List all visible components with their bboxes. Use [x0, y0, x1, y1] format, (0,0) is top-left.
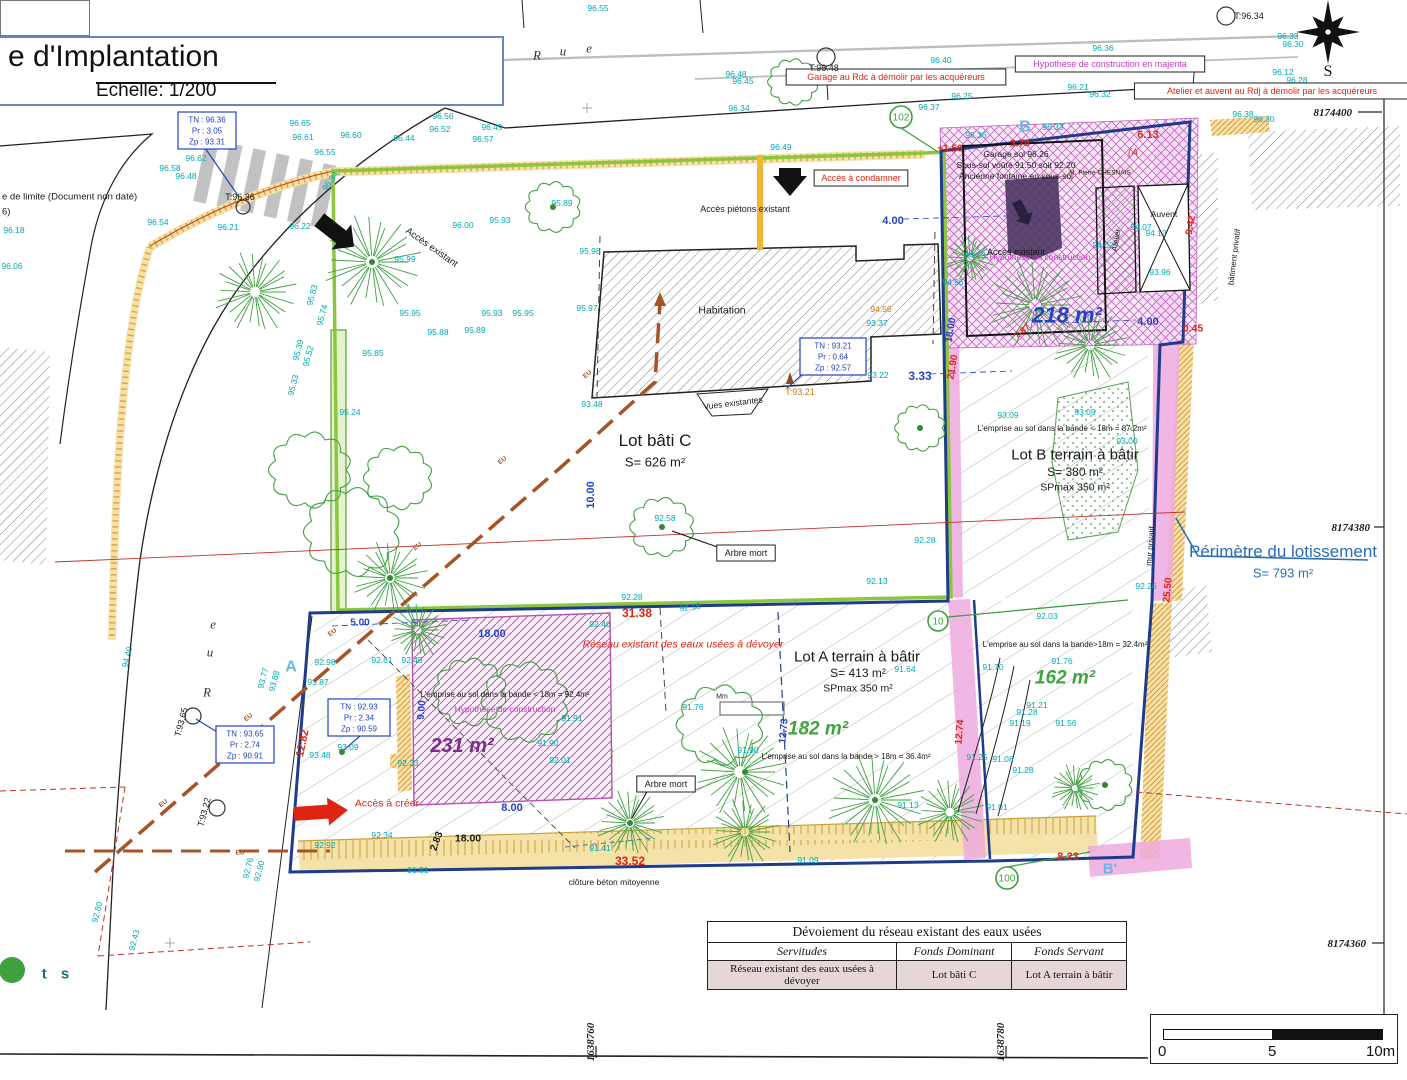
spot-elevation: 93.37 — [866, 318, 888, 328]
annotation-label: Accès piétons existant — [700, 204, 790, 214]
annotation-label: Arbre mort — [725, 548, 768, 558]
compass-rose: S — [1296, 0, 1360, 80]
plan-scale: Echelle: 1/200 — [96, 80, 216, 102]
spot-elevation: 95.93 — [481, 308, 503, 318]
site-plan-drawing: S 96.5596.5596.6596.6196.6096.5696.5296.… — [0, 0, 1407, 1080]
survey-info-line: Pr : 0.64 — [818, 352, 849, 361]
spot-elevation: 94.40 — [119, 645, 134, 668]
spot-elevation: 92.26 — [1135, 581, 1157, 591]
spot-elevation: 91.90 — [737, 745, 759, 755]
perimeter-label: Périmètre du lotissement — [1189, 542, 1377, 561]
dimension-label: 12.74 — [953, 719, 966, 745]
spot-elevation: 95.85 — [362, 348, 384, 358]
spot-elevation: 95.95 — [512, 308, 534, 318]
dimension-label: +1.50 — [937, 144, 963, 155]
spot-elevation: 96.45 — [732, 76, 754, 86]
spot-elevation: 96.40 — [930, 55, 952, 65]
survey-info-line: Zp : 92.57 — [815, 363, 852, 372]
emprise-note: L'emprise au sol dans la bande>18m = 32.… — [983, 640, 1148, 649]
spot-elevation: 95.33 — [285, 373, 300, 396]
street-name-letter: e — [586, 41, 592, 56]
spot-elevation: 91.51 — [407, 865, 429, 875]
spot-elevation: 96.52 — [429, 124, 451, 134]
spot-elevation: 96.62 — [185, 153, 207, 163]
scale-label-0: 0 — [1158, 1043, 1166, 1060]
dimension-label: 9.00 — [416, 699, 429, 720]
dimension-label: 10.00 — [585, 481, 597, 509]
emprise-note: L'emprise au sol dans la bande < 18m = 8… — [977, 424, 1147, 433]
spot-elevation: 94.56 — [870, 304, 892, 314]
spot-elevation: 96.44 — [393, 133, 415, 143]
spot-elevation: 91.64 — [894, 664, 916, 674]
annotation-label: A — [285, 659, 297, 676]
spot-elevation: 93.48 — [309, 750, 331, 760]
survey-point-label: T:96.48 — [809, 63, 839, 73]
spot-elevation: 91.90 — [537, 738, 559, 748]
dimension-label: 25.50 — [1161, 577, 1174, 603]
dimension-label: 18.00 — [478, 628, 506, 640]
spot-elevation: 93.09 — [997, 410, 1019, 420]
annotation-label: bâtiment privatif — [1226, 228, 1242, 286]
spot-elevation: 92.23 — [397, 758, 419, 768]
table-cell-servitude: Réseau existant des eaux usées à dévoyer — [708, 961, 897, 990]
dimension-label: 31.38 — [622, 606, 652, 620]
compass-south-label: S — [1324, 63, 1333, 80]
table-title: Dévoiement du réseau existant des eaux u… — [708, 922, 1127, 943]
spot-elevation: 91.76 — [682, 702, 704, 712]
spot-elevation: 92.13 — [866, 576, 888, 586]
spot-elevation: 91.28 — [1012, 765, 1034, 775]
spot-elevation: 96.30 — [1253, 114, 1275, 124]
dimension-label: 33.52 — [615, 854, 645, 868]
survey-info-line: Zp : 90.59 — [341, 724, 378, 733]
spot-elevation: 92.58 — [654, 513, 676, 523]
table-cell-dominant: Lot bâti C — [897, 961, 1012, 990]
spot-elevation: 92.28 — [621, 592, 643, 602]
annotation-label: e de limite (Document non daté) — [2, 191, 137, 202]
survey-info-line: Zp : 90.91 — [227, 751, 264, 760]
annotation-label: Réseau existant des eaux usées à dévoyer — [583, 639, 784, 651]
spot-elevation: 96.38 — [1232, 109, 1254, 119]
scale-bar-white-segment — [1163, 1029, 1273, 1040]
annotation-label: Accès à condamner — [821, 173, 901, 183]
spot-elevation: 96.21 — [1067, 82, 1089, 92]
spot-elevation: 93.87 — [307, 677, 329, 687]
plan-title: e d'Implantation — [8, 40, 219, 74]
annotation-label: Ancienne fontaine en sous-sol — [959, 171, 1073, 181]
dimension-label: 6.13 — [1137, 129, 1158, 141]
spot-elevation: 95.93 — [489, 215, 511, 225]
grid-coordinate-label: 8174360 — [1328, 938, 1367, 950]
annotation-label: Arbre mort — [645, 779, 688, 789]
dimension-label: 8.00 — [501, 802, 522, 814]
spot-elevation: 94.99 — [964, 250, 986, 260]
street-name-letter: e — [210, 617, 216, 632]
spot-elevation: 96.33 — [1042, 122, 1064, 132]
spot-elevation: 92.61 — [371, 655, 393, 665]
spot-elevation: 96.57 — [472, 134, 494, 144]
spot-elevation: 92.43 — [126, 928, 141, 951]
spot-elevation: 96.55 — [587, 3, 609, 13]
emprise-note: L'emprise au sol dans la bande > 18m = 3… — [761, 752, 931, 761]
perimeter-area: S= 793 m² — [1253, 566, 1314, 581]
spot-elevation: 96.36 — [965, 130, 987, 140]
spot-elevation: 93.00 — [1116, 436, 1138, 446]
grid-coordinate-label: 8174380 — [1332, 522, 1371, 534]
spot-elevation: 95.88 — [427, 327, 449, 337]
annotation-label: M. Pierre CHESNAIS — [1069, 169, 1131, 176]
spot-elevation: 93.48 — [581, 399, 603, 409]
construction-area-label: 182 m² — [788, 719, 849, 740]
spot-elevation: 95.95 — [399, 308, 421, 318]
spot-elevation: 95.89 — [551, 198, 573, 208]
spot-elevation: 92.45 — [401, 655, 423, 665]
parcel-label: Lot B terrain à bâtir — [1011, 446, 1139, 463]
survey-point-circle — [1217, 7, 1235, 25]
spot-elevation: 92.34 — [371, 830, 393, 840]
eu-label: EU — [412, 541, 424, 552]
parcel-number: 102 — [893, 113, 910, 124]
site-plan-page: S 96.5596.5596.6596.6196.6096.5696.5296.… — [0, 0, 1407, 1080]
annotation-label: clôture béton mitoyenne — [569, 877, 660, 887]
spot-elevation: 95.83 — [304, 283, 319, 306]
spot-elevation: 96.36 — [1092, 43, 1114, 53]
dimension-label: 3.78 — [1010, 139, 1030, 150]
street-name-letter: R — [202, 685, 211, 700]
spot-elevation: 96.34 — [728, 103, 750, 113]
spot-elevation: 91.56 — [1055, 718, 1077, 728]
spot-elevation: 96.65 — [289, 118, 311, 128]
spot-elevation: 91.01 — [986, 802, 1008, 812]
eu-label: EU — [243, 712, 255, 723]
spot-elevation: 92.01 — [549, 755, 571, 765]
spot-elevation: 91.91 — [561, 713, 583, 723]
spot-elevation: 96.49 — [481, 122, 503, 132]
compass-center — [1325, 29, 1330, 34]
annotation-label: (A — [1128, 148, 1138, 159]
spot-elevation: 91.19 — [1009, 718, 1031, 728]
spot-elevation: 96.21 — [217, 222, 239, 232]
spot-elevation: 91.09 — [797, 855, 819, 865]
spot-elevation: 96.56 — [432, 111, 454, 121]
scale-label-10m: 10m — [1366, 1043, 1395, 1060]
annotation-label: Sous-sol voûté 91.50 soit 92.20 — [956, 160, 1075, 170]
table-header-servitudes: Servitudes — [708, 943, 897, 961]
survey-point-label: T:96.36 — [225, 192, 255, 202]
parcel-label: S= 413 m² — [830, 666, 886, 680]
parcel-label: Lot bâti C — [619, 431, 692, 450]
annotation-label: 6) — [2, 206, 10, 217]
dimension-label: 8.23 — [1057, 851, 1078, 863]
habitation-building — [592, 244, 941, 398]
spot-elevation: 92.03 — [1036, 611, 1058, 621]
survey-point-label: T:93.21 — [785, 387, 815, 397]
servitude-table: Dévoiement du réseau existant des eaux u… — [707, 921, 1127, 990]
spot-elevation: 96.49 — [770, 142, 792, 152]
table-header-fonds-dominant: Fonds Dominant — [897, 943, 1012, 961]
annotation-label: B' — [1103, 860, 1117, 877]
annotation-label: t s — [42, 965, 75, 982]
emprise-note: L'emprise au sol dans la bande < 18m = 9… — [420, 690, 590, 699]
parcel-label: SPmax 350 m² — [823, 683, 893, 695]
table-row: Réseau existant des eaux usées à dévoyer… — [708, 961, 1127, 990]
annotation-label: Accès à créer — [355, 798, 420, 810]
grid-coordinate-label: 1638780 — [995, 1022, 1007, 1061]
spot-elevation: 91.08 — [992, 754, 1014, 764]
annotation-label: Auvent — [1151, 209, 1178, 219]
spot-elevation: 96.32 — [1089, 89, 1111, 99]
spot-elevation: 95.99 — [394, 254, 416, 264]
scale-bar: 0 5 10m — [1150, 1014, 1398, 1064]
spot-elevation: 91.28 — [1016, 707, 1038, 717]
annotation-label: B — [1019, 119, 1031, 136]
annotation-label: Atelier et auvent au Rdj à démolir par l… — [1167, 86, 1378, 96]
survey-info-line: TN : 93.65 — [226, 729, 264, 738]
spot-elevation: 91.25 — [966, 752, 988, 762]
annotation-label: Garage sol 96.26 — [983, 149, 1048, 159]
eu-label: EU — [497, 455, 509, 466]
spot-elevation: 95.89 — [464, 325, 486, 335]
spot-elevation: 96.25 — [951, 91, 973, 101]
title-block: e d'Implantation Echelle: 1/200 — [0, 36, 504, 106]
spot-elevation: 93.09 — [1074, 407, 1096, 417]
spot-elevation: 96.61 — [292, 132, 314, 142]
spot-elevation: 92.92 — [314, 840, 336, 850]
spot-elevation: 96.00 — [452, 220, 474, 230]
spot-elevation: 91.70 — [982, 662, 1004, 672]
spot-elevation: 92.98 — [314, 657, 336, 667]
table-header-fonds-servant: Fonds Servant — [1012, 943, 1127, 961]
corner-box — [0, 0, 90, 36]
dimension-label: 4.00 — [1137, 316, 1158, 328]
spot-elevation: 96.37 — [918, 102, 940, 112]
spot-elevation: 92.46 — [589, 619, 611, 629]
spot-elevation: 96.60 — [340, 130, 362, 140]
spot-elevation: 95.74 — [314, 303, 329, 326]
grid-coordinate-label: 8174400 — [1314, 107, 1353, 119]
spot-elevation: 96.54 — [147, 217, 169, 227]
eu-label: EU — [582, 369, 594, 380]
table-cell-servant: Lot A terrain à bâtir — [1012, 961, 1127, 990]
spot-elevation: 94.12 — [1145, 228, 1167, 238]
street-name-letter: u — [560, 44, 567, 59]
annotation-label: Hypothèse de construction — [990, 252, 1091, 262]
parcel-label: S= 626 m² — [625, 455, 686, 470]
survey-info-line: Pr : 3.05 — [192, 126, 223, 135]
spot-elevation: 94.96 — [942, 277, 964, 287]
construction-area-label: 218 m² — [1031, 303, 1102, 328]
parcel-label: Lot A terrain à bâtir — [794, 648, 920, 665]
survey-info-line: Pr : 2.74 — [230, 740, 261, 749]
spot-elevation: 92.80 — [89, 900, 104, 923]
spot-elevation: 96.18 — [3, 225, 25, 235]
construction-area-label: 162 m² — [1035, 668, 1096, 689]
dimension-label: 4.00 — [882, 215, 903, 227]
annotation-label: Garage au Rdc à démolir par les acquéreu… — [807, 72, 985, 82]
survey-point-label: T:96.34 — [1234, 11, 1264, 21]
spot-elevation: 93.96 — [1149, 267, 1171, 277]
spot-elevation: 95.98 — [579, 246, 601, 256]
parcel-label: SPmax 350 m² — [1040, 482, 1110, 494]
spot-elevation: 91.41 — [589, 843, 611, 853]
spot-elevation: 96.22 — [289, 221, 311, 231]
spot-elevation: 95.97 — [576, 303, 598, 313]
spot-elevation: 96.48 — [175, 171, 197, 181]
spot-elevation: 91.13 — [897, 800, 919, 810]
spot-elevation: 96.55 — [314, 147, 336, 157]
scale-label-5: 5 — [1268, 1043, 1276, 1060]
annotation-label: Habitation — [698, 305, 745, 317]
spot-elevation: 96.06 — [1, 261, 23, 271]
spot-elevation: 91.76 — [1051, 656, 1073, 666]
parcel-label: S= 380 m² — [1047, 465, 1103, 479]
spot-elevation: 93.22 — [867, 370, 889, 380]
parcel-number: 10 — [932, 617, 944, 628]
scale-bar-black-segment — [1273, 1029, 1383, 1040]
survey-info-line: Zp : 93.31 — [189, 137, 226, 146]
dimension-label: 5.00 — [350, 618, 370, 629]
spot-elevation: 95.24 — [339, 407, 361, 417]
survey-info-line: Pr : 2.34 — [344, 713, 375, 722]
spot-elevation: 96.30 — [1282, 39, 1304, 49]
dimension-label: 3.33 — [908, 369, 932, 383]
parcel-number: 100 — [999, 874, 1016, 885]
annotation-label: Mm — [716, 693, 728, 700]
spot-elevation: 93.09 — [337, 742, 359, 752]
annotation-label: Hypothèse de construction — [455, 704, 556, 714]
survey-info-line: TN : 96.36 — [188, 115, 226, 124]
dimension-label: 0.45 — [1183, 323, 1204, 335]
eu-label: EU — [235, 849, 244, 856]
survey-info-line: TN : 92.93 — [340, 702, 378, 711]
street-name-letter: u — [207, 645, 214, 660]
survey-info-line: TN : 93.21 — [814, 341, 852, 350]
dimension-label: 18.00 — [455, 833, 481, 845]
annotation-label: Hypothèse de construction en majenta — [1033, 59, 1187, 69]
construction-area-label: 231 m² — [429, 735, 495, 757]
grid-coordinate-label: 1638760 — [585, 1022, 597, 1061]
spot-elevation: 92.28 — [914, 535, 936, 545]
street-name-letter: R — [532, 48, 541, 63]
